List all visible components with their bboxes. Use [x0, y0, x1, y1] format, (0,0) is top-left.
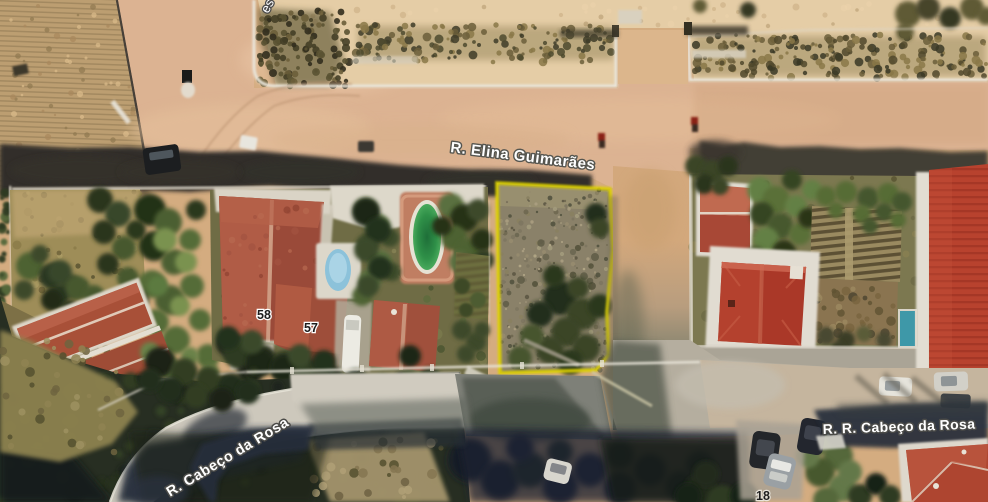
svg-text:57: 57 [304, 321, 318, 335]
svg-text:18: 18 [756, 489, 770, 502]
svg-text:58: 58 [257, 308, 271, 322]
